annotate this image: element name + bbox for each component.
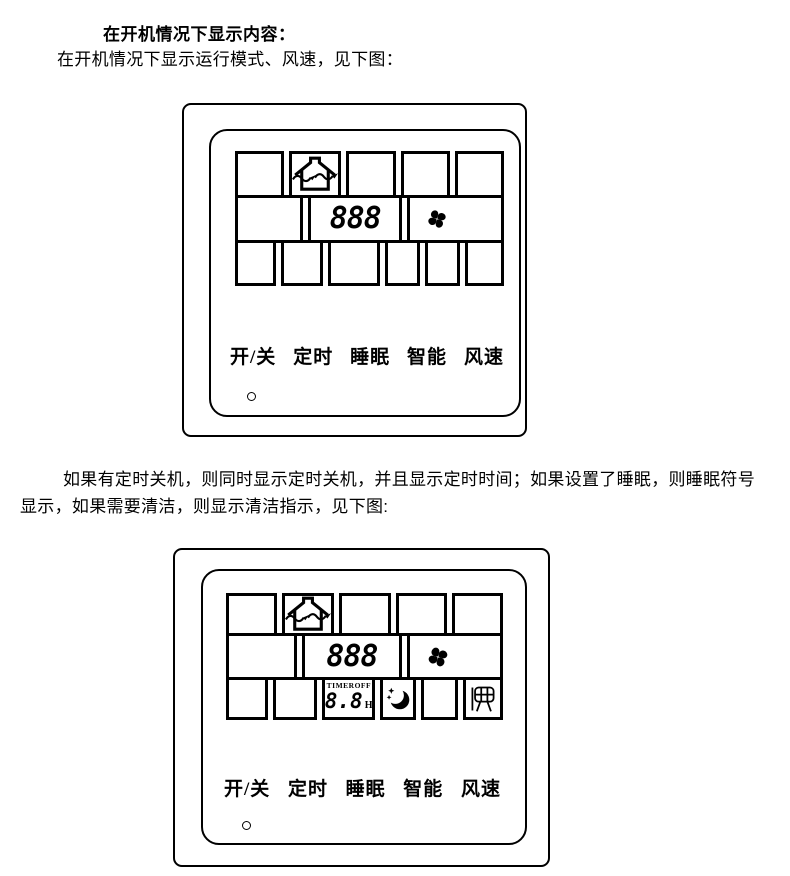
timer-unit-label: H bbox=[365, 701, 373, 711]
lcd-cell bbox=[281, 240, 323, 286]
lcd-cell bbox=[273, 677, 316, 720]
lcd-cell bbox=[328, 240, 380, 286]
lcd-cell bbox=[226, 677, 268, 720]
lcd-cell bbox=[385, 240, 420, 286]
fan-blades-icon bbox=[424, 643, 452, 671]
controller-figure-1: 888 bbox=[182, 103, 527, 437]
button-label-fanspeed: 风速 bbox=[461, 774, 501, 801]
lcd-cell bbox=[425, 240, 461, 286]
lcd-cell-clean bbox=[463, 677, 503, 720]
filter-clean-icon bbox=[468, 682, 498, 716]
lcd-cell bbox=[396, 593, 447, 636]
button-label-sleep: 睡眠 bbox=[350, 342, 390, 369]
lcd-row-main: 888 bbox=[235, 195, 504, 243]
lcd-cell bbox=[235, 240, 276, 286]
lcd-cell bbox=[339, 593, 390, 636]
manual-page: 在开机情况下显示内容： 在开机情况下显示运行模式、风速，见下图： bbox=[0, 0, 790, 876]
button-label-row: 开/关 定时 睡眠 智能 风速 bbox=[224, 774, 501, 801]
controller-figure-2: 888 bbox=[173, 548, 550, 867]
temperature-display: 888 bbox=[326, 642, 377, 672]
lcd-cell-mode bbox=[289, 151, 341, 198]
temperature-display: 888 bbox=[330, 204, 381, 234]
lcd-cell-mode bbox=[282, 593, 334, 636]
lcd-row-modes bbox=[235, 151, 504, 198]
timer-hours-value: 8.8 bbox=[325, 691, 363, 712]
house-ventilation-icon bbox=[285, 594, 331, 636]
lcd-cell bbox=[452, 593, 503, 636]
lcd-cell bbox=[455, 151, 504, 198]
fan-blades-icon bbox=[424, 206, 450, 232]
button-label-timer: 定时 bbox=[293, 342, 333, 369]
button-label-fanspeed: 风速 bbox=[464, 342, 504, 369]
lcd-cell-sleep bbox=[380, 677, 416, 720]
device-panel: 888 bbox=[201, 569, 527, 845]
lcd-cell bbox=[235, 195, 303, 243]
house-ventilation-icon bbox=[292, 154, 338, 196]
page-heading: 在开机情况下显示内容： bbox=[103, 20, 296, 45]
lcd-cell bbox=[401, 151, 450, 198]
lcd-grid: 888 bbox=[235, 151, 504, 286]
lcd-cell-fan bbox=[407, 633, 503, 680]
button-label-smart: 智能 bbox=[403, 774, 443, 801]
lcd-cell bbox=[421, 677, 458, 720]
timer-hours-display: 8.8 H bbox=[325, 691, 373, 712]
lcd-cell-temperature: 888 bbox=[308, 195, 402, 243]
button-label-sleep: 睡眠 bbox=[346, 774, 386, 801]
button-label-row: 开/关 定时 睡眠 智能 风速 bbox=[230, 342, 504, 369]
body-paragraph: 如果有定时关机，则同时显示定时关机，并且显示定时时间；如果设置了睡眠，则睡眠符号… bbox=[20, 466, 755, 520]
button-label-power: 开/关 bbox=[224, 774, 270, 801]
lcd-cell bbox=[465, 240, 504, 286]
lcd-cell bbox=[226, 593, 277, 636]
power-indicator-dot bbox=[247, 392, 256, 401]
button-label-power: 开/关 bbox=[230, 342, 276, 369]
moon-stars-icon bbox=[385, 685, 412, 712]
lcd-row-status bbox=[235, 240, 504, 286]
intro-text: 在开机情况下显示运行模式、风速，见下图： bbox=[57, 46, 403, 73]
lcd-cell bbox=[226, 633, 297, 680]
lcd-cell-fan bbox=[407, 195, 504, 243]
button-label-timer: 定时 bbox=[288, 774, 328, 801]
lcd-cell-temperature: 888 bbox=[302, 633, 402, 680]
button-label-smart: 智能 bbox=[407, 342, 447, 369]
lcd-row-status: TIMER OFF 8.8 H bbox=[226, 677, 503, 720]
lcd-grid: 888 bbox=[226, 593, 503, 720]
power-indicator-dot bbox=[242, 821, 251, 830]
lcd-cell bbox=[346, 151, 395, 198]
lcd-row-modes bbox=[226, 593, 503, 636]
lcd-cell bbox=[235, 151, 284, 198]
lcd-row-main: 888 bbox=[226, 633, 503, 680]
lcd-cell-timer: TIMER OFF 8.8 H bbox=[322, 677, 376, 720]
device-panel: 888 bbox=[209, 129, 521, 417]
